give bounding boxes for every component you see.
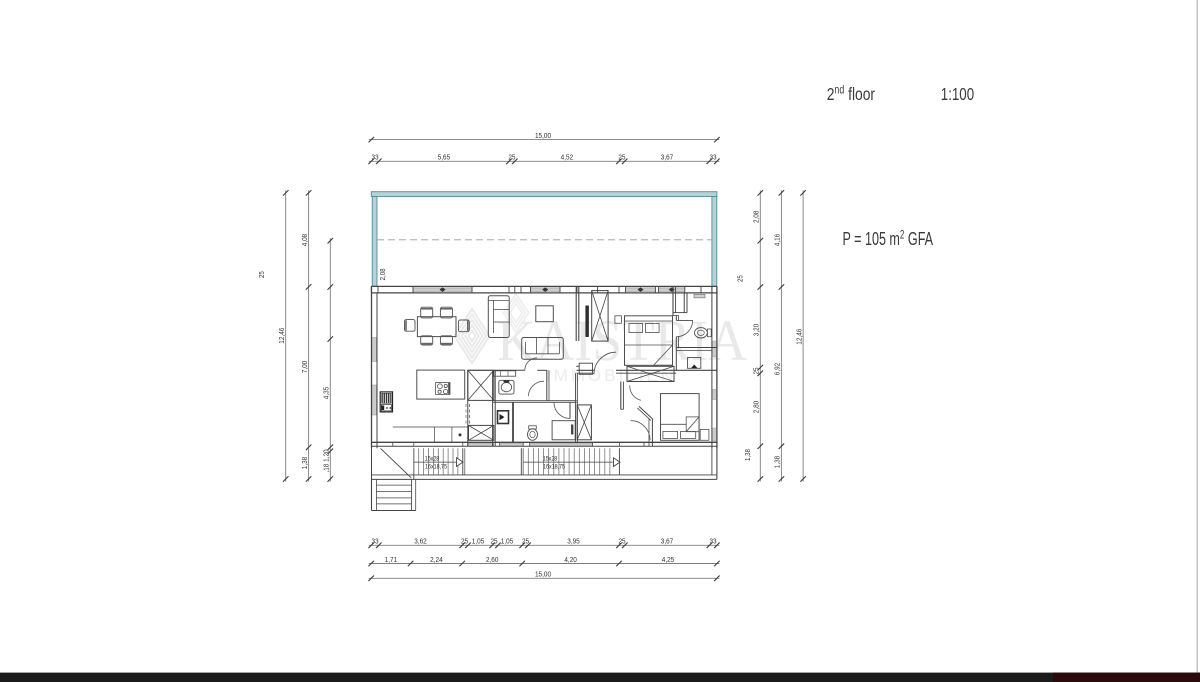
svg-text:25: 25 <box>259 271 266 278</box>
svg-text:,18 1,20: ,18 1,20 <box>323 449 330 472</box>
svg-text:2,24: 2,24 <box>430 556 443 563</box>
svg-text:KAISTRIA: KAISTRIA <box>497 308 747 373</box>
svg-text:1,05: 1,05 <box>501 538 514 545</box>
svg-text:33: 33 <box>709 154 716 161</box>
svg-text:4,16: 4,16 <box>774 234 781 247</box>
svg-text:25: 25 <box>508 154 515 161</box>
svg-text:4,52: 4,52 <box>561 154 574 161</box>
svg-text:2,60: 2,60 <box>486 556 499 563</box>
svg-text:3,67: 3,67 <box>661 154 674 161</box>
svg-text:1,05: 1,05 <box>472 538 485 545</box>
svg-text:2,08: 2,08 <box>753 210 760 223</box>
svg-text:33: 33 <box>709 538 716 545</box>
svg-text:16x18,75: 16x18,75 <box>543 464 565 470</box>
svg-text:12,46: 12,46 <box>279 328 286 344</box>
svg-text:25: 25 <box>461 538 468 545</box>
svg-text:12,46: 12,46 <box>796 329 803 345</box>
svg-text:1,38: 1,38 <box>774 456 781 469</box>
svg-text:3,95: 3,95 <box>567 538 580 545</box>
svg-text:2nd floor: 2nd floor <box>827 84 876 104</box>
svg-text:4,20: 4,20 <box>564 556 577 563</box>
svg-text:25: 25 <box>737 275 744 282</box>
svg-text:33: 33 <box>371 154 378 161</box>
svg-text:P = 105 m2 GFA: P = 105 m2 GFA <box>843 229 934 250</box>
svg-text:2,08: 2,08 <box>380 268 387 280</box>
svg-text:25: 25 <box>618 154 625 161</box>
svg-text:1,38: 1,38 <box>745 449 752 461</box>
svg-text:25: 25 <box>618 538 625 545</box>
svg-text:16x18,75: 16x18,75 <box>425 464 447 470</box>
svg-text:15x28: 15x28 <box>543 456 558 462</box>
svg-text:4,25: 4,25 <box>662 556 675 563</box>
svg-text:25: 25 <box>522 538 529 545</box>
svg-text:33: 33 <box>371 538 378 545</box>
svg-text:4,08: 4,08 <box>301 234 308 247</box>
svg-text:25: 25 <box>753 367 760 374</box>
svg-text:2,80: 2,80 <box>753 401 760 414</box>
svg-text:6,92: 6,92 <box>774 363 781 376</box>
svg-text:25: 25 <box>490 538 497 545</box>
svg-text:1,71: 1,71 <box>385 556 398 563</box>
svg-text:4,35: 4,35 <box>323 387 330 400</box>
svg-text:15,00: 15,00 <box>535 571 551 578</box>
svg-text:3,67: 3,67 <box>661 538 674 545</box>
svg-text:3,62: 3,62 <box>414 538 427 545</box>
svg-text:5,65: 5,65 <box>438 154 451 161</box>
svg-text:1:100: 1:100 <box>941 85 974 104</box>
svg-text:1,38: 1,38 <box>301 457 308 470</box>
svg-text:15,00: 15,00 <box>535 133 551 140</box>
svg-text:7,00: 7,00 <box>301 361 308 374</box>
svg-text:3,20: 3,20 <box>753 324 760 337</box>
svg-text:15x28: 15x28 <box>425 456 440 462</box>
